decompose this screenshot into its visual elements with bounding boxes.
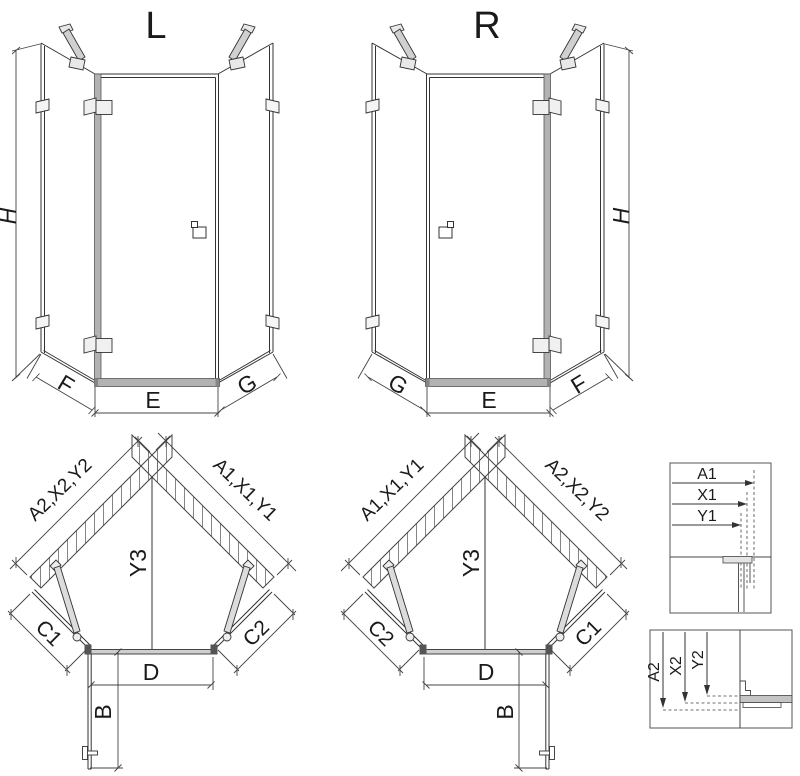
dim-label-wall-left-plan-left: A2,X2,Y2 xyxy=(24,455,96,526)
plan-door-handle xyxy=(83,747,98,760)
dim-label-c2-plan-right: C2 xyxy=(363,616,398,651)
detail-floor-tray-bar xyxy=(740,696,792,703)
plan-corner-post-left xyxy=(85,645,92,655)
dim-label-door-e-right-view: E xyxy=(481,387,496,413)
bottom-bar-cap-left xyxy=(95,379,99,387)
detail-wall-border xyxy=(670,463,771,613)
glass-panel-outlines xyxy=(41,43,273,383)
detail-wall-bracket xyxy=(723,557,752,564)
dim-label-depth-plan-left: Y3 xyxy=(125,549,151,577)
plan-front-threshold xyxy=(90,650,212,655)
dim-label-panel-f-left-view: F xyxy=(53,369,78,399)
dim-label-door-width-plan-right: D xyxy=(478,659,495,685)
detail-floor-step xyxy=(740,681,751,696)
technical-drawing-page: L R H F E G H G E F A2,X2,Y2 A1,X1,Y1 Y3… xyxy=(0,0,800,776)
detail-label-y1: Y1 xyxy=(697,508,717,525)
detail-label-x1: X1 xyxy=(697,487,717,504)
dim-label-door-e-left-view: E xyxy=(145,387,160,413)
view-title-left: L xyxy=(145,5,166,47)
detail-wall-dashed-lines xyxy=(741,470,754,589)
dim-label-wall-left-plan-right: A1,X1,Y1 xyxy=(356,455,428,526)
plan-corner-post-right xyxy=(211,645,218,655)
detail-label-y2: Y2 xyxy=(690,650,707,670)
door-handle xyxy=(192,222,207,239)
detail-floor-dashed-lines xyxy=(663,696,740,710)
door-post-profile xyxy=(95,74,102,379)
bottom-bar-cap-right xyxy=(216,379,220,387)
dim-label-c2-plan-left: C2 xyxy=(239,616,274,651)
dim-label-wall-right-plan-left: A1,X1,Y1 xyxy=(209,455,281,526)
detail-label-x2: X2 xyxy=(668,656,685,676)
detail-wall-profile xyxy=(670,463,771,613)
dim-label-door-width-plan-left: D xyxy=(143,659,160,685)
dim-label-panel-g-left-view: G xyxy=(233,368,262,400)
shower-enclosure-diagram: L R H F E G H G E F A2,X2,Y2 A1,X1,Y1 Y3… xyxy=(0,0,800,776)
dim-label-height-left-view: H xyxy=(0,207,21,224)
dim-label-panel-g-right-view: G xyxy=(384,368,413,400)
detail-label-a1: A1 xyxy=(697,466,717,483)
detail-floor-border xyxy=(650,630,792,728)
dim-label-height-right-view: H xyxy=(608,207,634,224)
detail-floor-profile xyxy=(650,630,792,728)
detail-wall-profile-lines xyxy=(739,563,751,612)
elevation-dimension-lines xyxy=(12,44,287,417)
front-view-right-geometry xyxy=(358,24,633,417)
dim-label-door-open-plan-left: B xyxy=(90,704,116,719)
dim-label-wall-right-plan-right: A2,X2,Y2 xyxy=(541,455,613,526)
dim-label-door-open-plan-right: B xyxy=(492,704,518,719)
detail-floor-seal-bar xyxy=(743,703,781,708)
bottom-bar-profile xyxy=(95,379,220,387)
plan-glass-lines xyxy=(32,477,272,649)
dim-label-depth-plan-right: Y3 xyxy=(458,549,484,577)
dim-label-panel-f-right-view: F xyxy=(566,369,591,399)
front-view-left-geometry xyxy=(12,24,287,417)
detail-label-a2: A2 xyxy=(646,662,663,682)
view-title-right: R xyxy=(473,5,500,47)
wall-brackets xyxy=(36,99,279,329)
